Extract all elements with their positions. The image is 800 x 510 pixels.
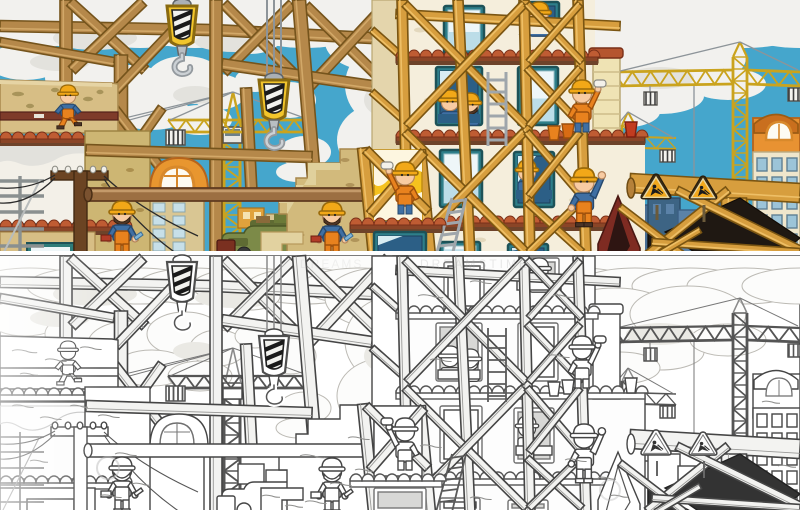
svg-text:DREAMSTIME: DREAMSTIME xyxy=(420,257,530,271)
svg-text:DREAMS: DREAMS xyxy=(300,257,363,271)
